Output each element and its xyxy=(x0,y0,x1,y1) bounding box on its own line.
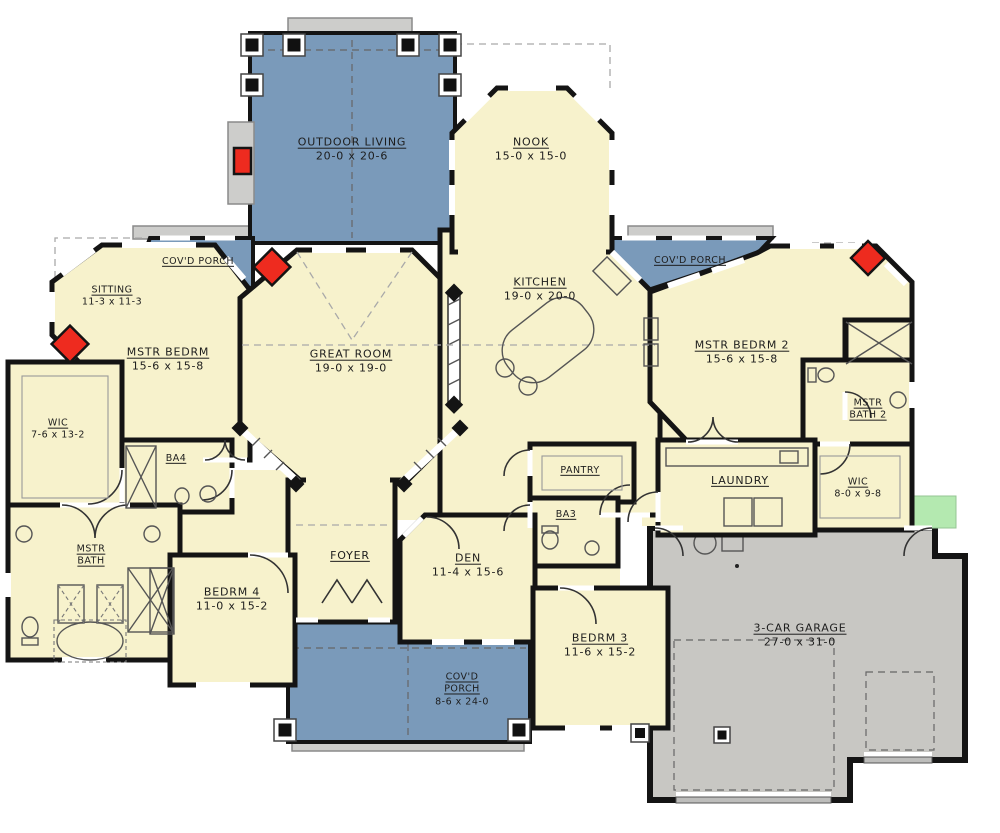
colonnade-kitchen xyxy=(445,284,463,414)
side-stoop xyxy=(914,496,956,528)
label-covd-porch-left: COV'D PORCH xyxy=(162,256,234,268)
label-mstr-bedrm: MSTR BEDRM15-6 x 15-8 xyxy=(127,346,209,375)
label-covd-porch-bottom: COV'DPORCH8-6 x 24-0 xyxy=(435,671,489,708)
label-wic-right: WIC8-0 x 9-8 xyxy=(834,477,881,502)
label-bedrm4: BEDRM 411-0 x 15-2 xyxy=(196,586,268,615)
label-foyer: FOYER xyxy=(330,549,370,563)
label-great-room: GREAT ROOM19-0 x 19-0 xyxy=(310,348,392,377)
label-ba3: BA3 xyxy=(556,509,577,521)
label-pantry: PANTRY xyxy=(560,465,599,477)
label-outdoor-living: OUTDOOR LIVING20-0 x 20-6 xyxy=(298,136,406,165)
floor-plan: OUTDOOR LIVING20-0 x 20-6 NOOK15-0 x 15-… xyxy=(0,0,1000,833)
label-den: DEN11-4 x 15-6 xyxy=(432,552,504,581)
label-mstr-bedrm2: MSTR BEDRM 215-6 x 15-8 xyxy=(695,339,790,368)
label-laundry: LAUNDRY xyxy=(711,474,769,488)
bedrm4-area xyxy=(170,555,295,685)
outdoor-fireplace-firebox-icon xyxy=(234,148,251,174)
label-sitting: SITTING11-3 x 11-3 xyxy=(82,285,142,310)
label-mstr-bath2: MSTRBATH 2 xyxy=(849,398,886,423)
label-nook: NOOK15-0 x 15-0 xyxy=(495,136,567,165)
label-ba4: BA4 xyxy=(166,453,187,465)
garage-door-single xyxy=(864,757,932,763)
label-garage: 3-CAR GARAGE27-0 x 31-0 xyxy=(754,622,847,651)
label-kitchen: KITCHEN19-0 x 20-0 xyxy=(504,276,576,305)
label-covd-porch-right: COV'D PORCH xyxy=(654,255,726,267)
label-bedrm3: BEDRM 311-6 x 15-2 xyxy=(564,632,636,661)
garage-door-double xyxy=(676,797,831,803)
label-mstr-bath: MSTRBATH xyxy=(77,544,106,569)
garage-area xyxy=(650,528,965,806)
label-wic-left: WIC7-6 x 13-2 xyxy=(31,418,85,443)
